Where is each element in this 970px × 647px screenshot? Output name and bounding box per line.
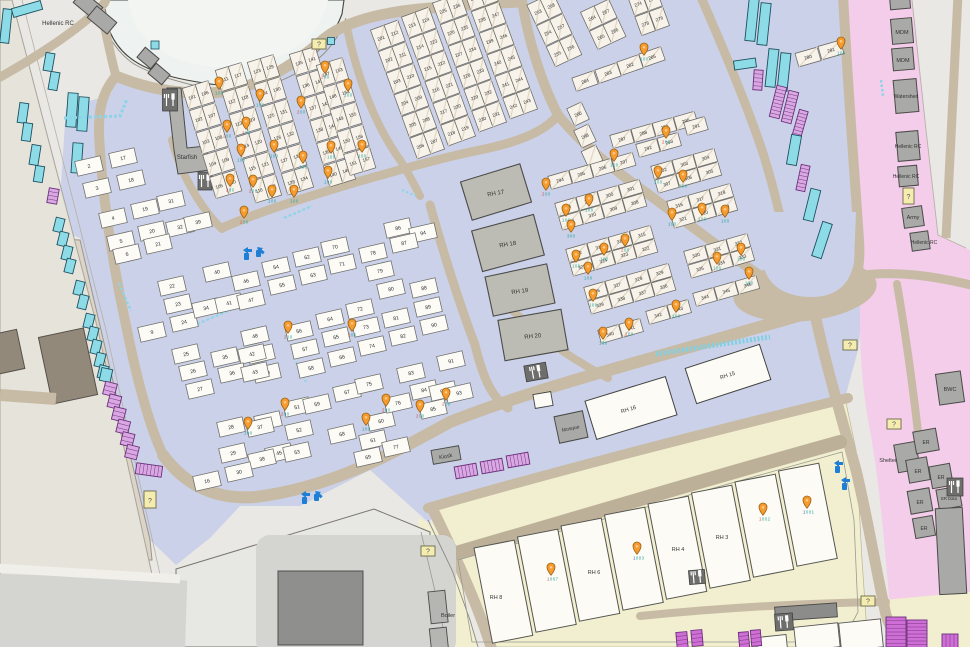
svg-text:200: 200 bbox=[348, 333, 357, 338]
svg-text:BWC: BWC bbox=[944, 387, 957, 393]
svg-text:Starfish: Starfish bbox=[177, 155, 197, 161]
svg-text:?: ? bbox=[317, 42, 321, 49]
svg-text:200: 200 bbox=[625, 332, 634, 337]
svg-text:?: ? bbox=[848, 343, 852, 350]
svg-text:100: 100 bbox=[599, 341, 608, 346]
svg-text:100: 100 bbox=[362, 427, 371, 432]
svg-text:?: ? bbox=[892, 422, 896, 429]
svg-text:1007: 1007 bbox=[547, 577, 559, 582]
svg-text:RH 8: RH 8 bbox=[490, 595, 503, 601]
svg-text:200: 200 bbox=[223, 134, 232, 139]
svg-text:100: 100 bbox=[358, 154, 367, 159]
svg-text:300: 300 bbox=[567, 234, 576, 239]
svg-text:100: 100 bbox=[837, 51, 846, 56]
svg-text:100: 100 bbox=[270, 154, 279, 159]
svg-text:100: 100 bbox=[640, 57, 649, 62]
svg-text:Hellenic RC: Hellenic RC bbox=[911, 240, 938, 246]
svg-text:100: 100 bbox=[324, 180, 333, 185]
svg-text:100: 100 bbox=[589, 303, 598, 308]
svg-text:RH 3: RH 3 bbox=[716, 535, 729, 541]
svg-text:200: 200 bbox=[321, 75, 330, 80]
svg-text:200: 200 bbox=[242, 131, 251, 136]
svg-text:ER Data: ER Data bbox=[941, 496, 957, 501]
svg-text:100: 100 bbox=[237, 158, 246, 163]
svg-text:?: ? bbox=[866, 599, 870, 606]
svg-text:100: 100 bbox=[713, 266, 722, 271]
svg-text:200: 200 bbox=[382, 408, 391, 413]
svg-text:Hellenic RC: Hellenic RC bbox=[42, 21, 74, 27]
svg-text:100: 100 bbox=[268, 199, 277, 204]
svg-text:100: 100 bbox=[668, 222, 677, 227]
svg-text:100: 100 bbox=[256, 103, 265, 108]
svg-text:ER: ER bbox=[923, 440, 930, 446]
svg-text:200: 200 bbox=[621, 248, 630, 253]
svg-text:Hellenic RC: Hellenic RC bbox=[893, 174, 920, 180]
svg-text:200: 200 bbox=[442, 402, 451, 407]
svg-text:100: 100 bbox=[327, 155, 336, 160]
svg-text:100: 100 bbox=[584, 276, 593, 281]
svg-text:100: 100 bbox=[244, 431, 253, 436]
svg-text:200: 200 bbox=[226, 188, 235, 193]
svg-text:200: 200 bbox=[240, 220, 249, 225]
svg-text:RH 4: RH 4 bbox=[672, 547, 685, 553]
svg-text:100: 100 bbox=[654, 180, 663, 185]
svg-text:200: 200 bbox=[249, 189, 258, 194]
svg-text:1001: 1001 bbox=[803, 510, 815, 515]
svg-text:100: 100 bbox=[672, 314, 681, 319]
svg-text:ER: ER bbox=[921, 526, 928, 532]
svg-text:100: 100 bbox=[299, 165, 308, 170]
svg-text:100: 100 bbox=[585, 208, 594, 213]
svg-text:100: 100 bbox=[290, 199, 299, 204]
svg-text:200: 200 bbox=[284, 335, 293, 340]
svg-text:100: 100 bbox=[215, 91, 224, 96]
svg-text:100: 100 bbox=[698, 217, 707, 222]
svg-text:100: 100 bbox=[610, 163, 619, 168]
svg-text:Watershed: Watershed bbox=[894, 94, 919, 100]
svg-text:200: 200 bbox=[416, 414, 425, 419]
svg-text:100: 100 bbox=[745, 281, 754, 286]
svg-text:ER: ER bbox=[915, 469, 922, 475]
svg-text:MDM: MDM bbox=[895, 30, 909, 36]
svg-text:Boiler: Boiler bbox=[441, 613, 455, 619]
svg-text:ER: ER bbox=[938, 475, 945, 481]
svg-text:MDM: MDM bbox=[896, 58, 910, 64]
svg-text:?: ? bbox=[907, 194, 911, 201]
svg-text:200: 200 bbox=[297, 110, 306, 115]
svg-text:ER: ER bbox=[917, 500, 924, 506]
svg-text:100: 100 bbox=[737, 257, 746, 262]
svg-text:Shelter: Shelter bbox=[879, 458, 897, 464]
svg-text:200: 200 bbox=[662, 140, 671, 145]
svg-text:200: 200 bbox=[281, 412, 290, 417]
svg-text:100: 100 bbox=[679, 184, 688, 189]
svg-text:1003: 1003 bbox=[633, 556, 645, 561]
svg-text:100: 100 bbox=[572, 264, 581, 269]
svg-text:Hellenic RC: Hellenic RC bbox=[895, 144, 922, 150]
svg-text:RH 6: RH 6 bbox=[588, 570, 601, 576]
svg-text:1002: 1002 bbox=[759, 517, 771, 522]
svg-text:100: 100 bbox=[600, 257, 609, 262]
svg-text:200: 200 bbox=[542, 192, 551, 197]
svg-text:100: 100 bbox=[721, 219, 730, 224]
svg-text:?: ? bbox=[426, 549, 430, 556]
svg-text:?: ? bbox=[148, 498, 152, 505]
svg-text:100: 100 bbox=[344, 93, 353, 98]
svg-text:Army: Army bbox=[907, 215, 920, 221]
